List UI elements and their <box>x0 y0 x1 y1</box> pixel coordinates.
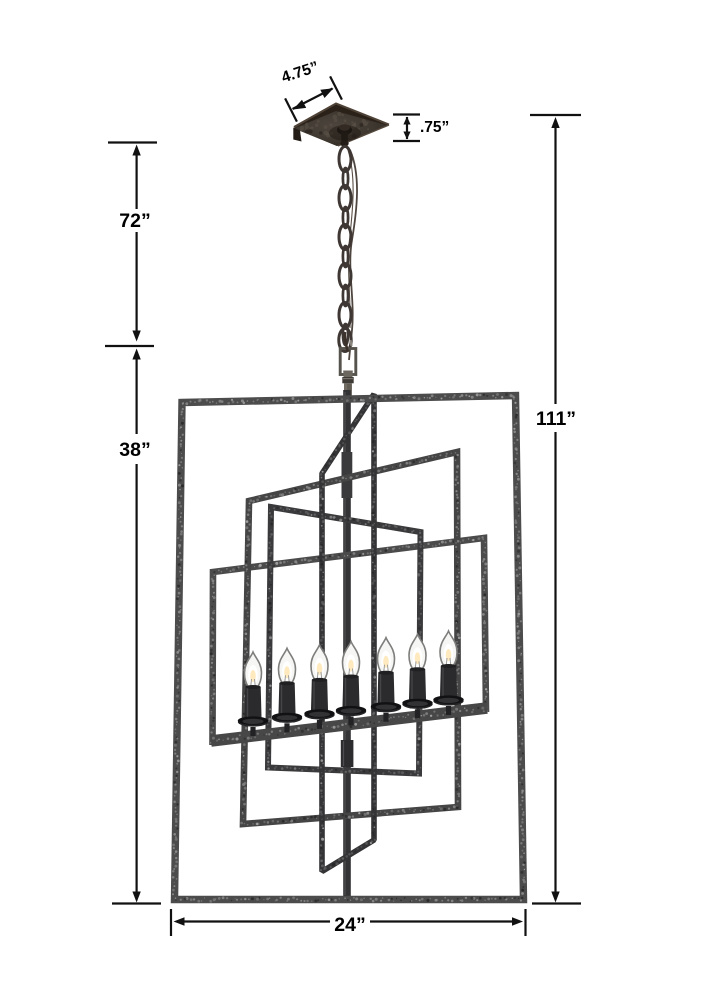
svg-text:.75”: .75” <box>420 119 449 136</box>
svg-text:24”: 24” <box>334 914 365 936</box>
svg-text:38”: 38” <box>119 439 150 461</box>
svg-text:111”: 111” <box>536 408 576 430</box>
svg-text:72”: 72” <box>119 210 150 232</box>
